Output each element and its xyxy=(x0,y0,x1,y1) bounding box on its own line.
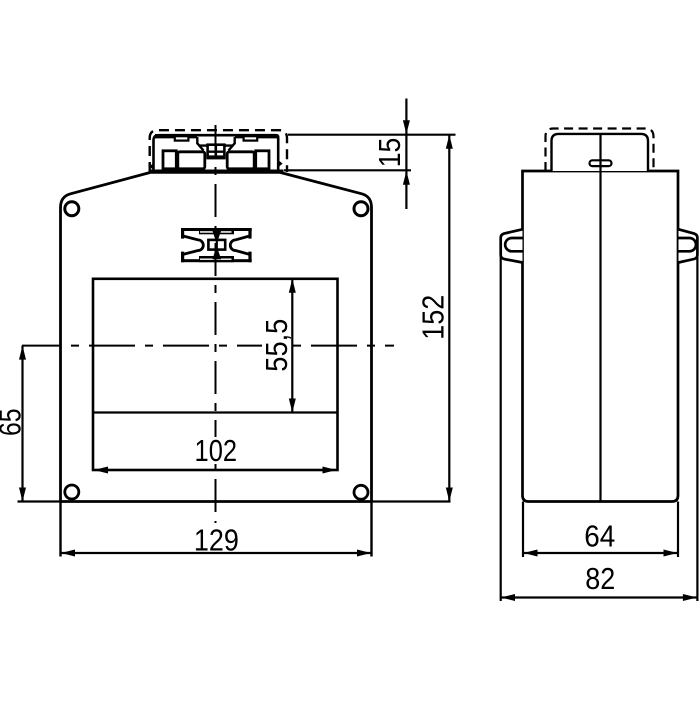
svg-text:65: 65 xyxy=(0,409,28,437)
svg-text:82: 82 xyxy=(585,561,615,596)
svg-text:55,5: 55,5 xyxy=(259,319,294,372)
svg-text:129: 129 xyxy=(194,523,239,558)
svg-text:152: 152 xyxy=(416,295,451,340)
svg-text:102: 102 xyxy=(195,433,238,468)
svg-text:15: 15 xyxy=(372,138,407,168)
svg-text:64: 64 xyxy=(584,518,615,553)
